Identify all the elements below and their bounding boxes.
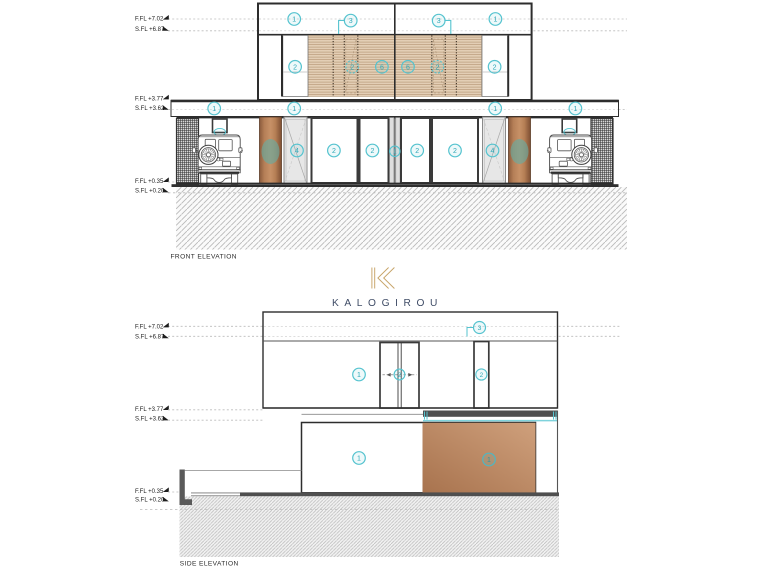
svg-text:F.FL +7.02: F.FL +7.02 — [135, 324, 164, 330]
svg-text:F.FL +7.02: F.FL +7.02 — [135, 17, 164, 23]
svg-text:S.FL +3.62: S.FL +3.62 — [135, 106, 165, 112]
svg-text:F.FL +3.77: F.FL +3.77 — [135, 407, 164, 413]
svg-text:2: 2 — [293, 64, 297, 71]
svg-text:1: 1 — [573, 106, 577, 113]
svg-text:S.FL +0.20: S.FL +0.20 — [135, 189, 165, 195]
svg-text:2: 2 — [480, 372, 484, 379]
svg-text:4: 4 — [491, 148, 495, 155]
svg-text:6: 6 — [380, 64, 384, 71]
svg-text:2: 2 — [398, 372, 402, 379]
svg-text:F.FL +0.35: F.FL +0.35 — [135, 179, 164, 185]
svg-text:2: 2 — [350, 64, 354, 71]
svg-text:1: 1 — [493, 17, 497, 24]
svg-text:KALOGIROU: KALOGIROU — [332, 298, 443, 309]
svg-text:2: 2 — [370, 148, 374, 155]
svg-text:1: 1 — [393, 149, 397, 156]
svg-text:2: 2 — [493, 64, 497, 71]
svg-text:SIDE ELEVATION: SIDE ELEVATION — [180, 560, 239, 567]
svg-text:4: 4 — [295, 148, 299, 155]
svg-text:1: 1 — [212, 106, 216, 113]
svg-text:S.FL +6.87: S.FL +6.87 — [135, 334, 165, 340]
svg-text:1: 1 — [292, 17, 296, 24]
svg-text:FRONT ELEVATION: FRONT ELEVATION — [171, 253, 237, 260]
svg-text:1: 1 — [292, 106, 296, 113]
svg-text:6: 6 — [406, 64, 410, 71]
svg-text:1: 1 — [357, 372, 361, 379]
svg-text:2: 2 — [453, 148, 457, 155]
svg-text:2: 2 — [332, 148, 336, 155]
svg-text:3: 3 — [437, 18, 441, 25]
svg-text:1: 1 — [493, 106, 497, 113]
svg-text:S.FL +6.87: S.FL +6.87 — [135, 27, 165, 33]
svg-text:1: 1 — [357, 456, 361, 463]
svg-text:S.FL +3.62: S.FL +3.62 — [135, 417, 165, 423]
svg-text:F.FL +0.35: F.FL +0.35 — [135, 489, 164, 495]
svg-text:1: 1 — [487, 457, 491, 464]
svg-text:2: 2 — [415, 148, 419, 155]
svg-text:2: 2 — [435, 64, 439, 71]
svg-text:3: 3 — [349, 18, 353, 25]
svg-text:F.FL +3.77: F.FL +3.77 — [135, 96, 164, 102]
svg-text:3: 3 — [478, 325, 482, 332]
svg-text:S.FL +0.20: S.FL +0.20 — [135, 498, 165, 504]
